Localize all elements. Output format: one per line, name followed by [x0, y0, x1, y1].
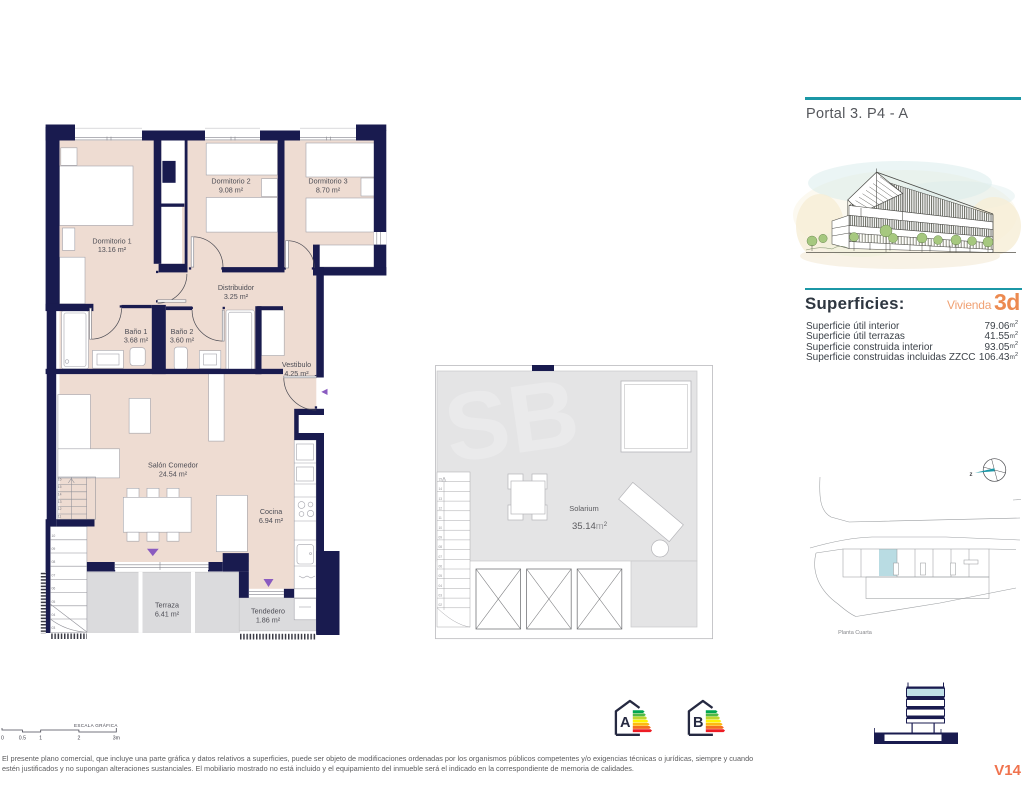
svg-text:14: 14: [58, 492, 62, 496]
svg-text:07: 07: [439, 555, 443, 559]
svg-text:08: 08: [52, 560, 56, 564]
svg-text:12: 12: [58, 507, 62, 511]
svg-text:Distribuidor: Distribuidor: [218, 283, 255, 292]
svg-text:02: 02: [439, 603, 443, 607]
svg-text:05: 05: [439, 574, 443, 578]
svg-text:13: 13: [439, 497, 443, 501]
svg-text:12: 12: [439, 507, 443, 511]
svg-text:z: z: [970, 472, 973, 478]
svg-text:13.16 m²: 13.16 m²: [98, 245, 127, 254]
svg-text:1: 1: [39, 736, 42, 742]
svg-text:3.60 m²: 3.60 m²: [170, 336, 195, 345]
svg-text:10: 10: [52, 534, 56, 538]
svg-text:16: 16: [58, 478, 62, 482]
svg-text:35.14m2: 35.14m2: [572, 521, 608, 532]
svg-text:4.25 m²: 4.25 m²: [284, 369, 309, 378]
svg-text:11: 11: [439, 516, 443, 520]
svg-text:13: 13: [58, 500, 62, 504]
svg-text:05: 05: [52, 600, 56, 604]
svg-text:3.25 m²: 3.25 m²: [224, 292, 249, 301]
svg-text:08: 08: [439, 545, 443, 549]
svg-text:Planta Cuarta: Planta Cuarta: [838, 630, 873, 636]
svg-text:6.41 m²: 6.41 m²: [155, 610, 180, 619]
svg-text:6.94 m²: 6.94 m²: [259, 516, 284, 525]
svg-text:A: A: [620, 715, 631, 731]
svg-text:07: 07: [52, 574, 56, 578]
svg-text:14: 14: [439, 487, 443, 491]
svg-text:3.68 m²: 3.68 m²: [124, 336, 149, 345]
svg-text:SB: SB: [438, 359, 585, 484]
svg-text:15: 15: [439, 478, 443, 482]
svg-text:8.70 m²: 8.70 m²: [316, 186, 341, 195]
svg-text:Tendedero: Tendedero: [251, 607, 285, 616]
svg-text:09: 09: [52, 547, 56, 551]
svg-text:Solarium: Solarium: [569, 504, 599, 513]
svg-text:9.08 m²: 9.08 m²: [219, 186, 244, 195]
svg-text:06: 06: [439, 565, 443, 569]
svg-text:1.86 m²: 1.86 m²: [256, 616, 281, 625]
svg-text:Salón Comedor: Salón Comedor: [148, 461, 199, 470]
svg-text:Dormitorio 2: Dormitorio 2: [211, 177, 250, 186]
svg-text:15: 15: [58, 485, 62, 489]
svg-text:24.54 m²: 24.54 m²: [159, 470, 188, 479]
svg-text:2: 2: [77, 736, 80, 742]
svg-text:0.5: 0.5: [19, 736, 26, 742]
svg-text:03: 03: [52, 626, 56, 630]
svg-text:Terraza: Terraza: [155, 601, 179, 610]
svg-text:10: 10: [439, 526, 443, 530]
svg-text:3m: 3m: [113, 736, 120, 742]
svg-text:04: 04: [52, 613, 56, 617]
svg-text:Cocina: Cocina: [260, 507, 282, 516]
svg-text:0: 0: [1, 736, 4, 742]
svg-text:B: B: [693, 715, 703, 731]
svg-text:Vestibulo: Vestibulo: [282, 360, 311, 369]
svg-text:04: 04: [439, 584, 443, 588]
svg-text:Dormitorio 3: Dormitorio 3: [308, 177, 347, 186]
svg-text:03: 03: [439, 594, 443, 598]
svg-text:ESCALA GRÁFICA: ESCALA GRÁFICA: [74, 722, 118, 728]
svg-text:06: 06: [52, 587, 56, 591]
svg-text:11: 11: [58, 515, 62, 519]
svg-text:09: 09: [439, 536, 443, 540]
